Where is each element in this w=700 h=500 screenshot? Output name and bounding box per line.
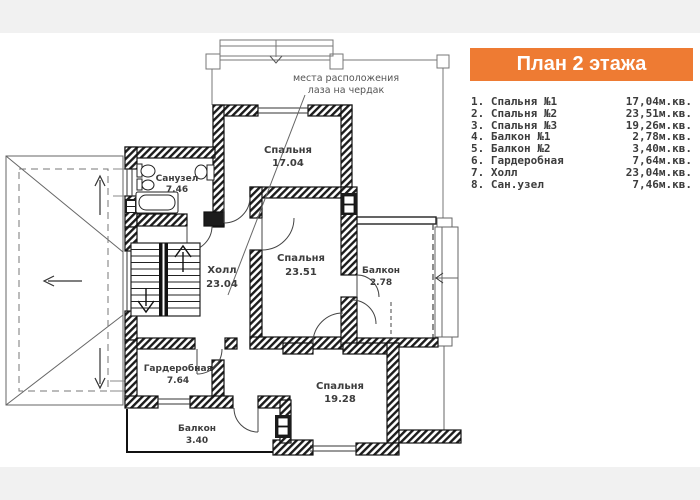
- legend-label: 8. Сан.узел: [471, 179, 544, 191]
- room-area-bathroom: 7.46: [166, 185, 188, 195]
- room-label-balcony2: Балкон: [178, 424, 216, 434]
- window-wardrobe-bottom: [158, 399, 190, 404]
- legend-area: 23,51м.кв.: [626, 108, 692, 120]
- legend-label: 7. Холл: [471, 167, 517, 179]
- legend-row: 8. Сан.узел 7,46м.кв.: [471, 179, 692, 191]
- room-area-hall: 23.04: [206, 279, 238, 290]
- legend-row: 7. Холл 23,04м.кв.: [471, 167, 692, 179]
- legend-area: 7,64м.кв.: [632, 155, 692, 167]
- room-label-bedroom1: Спальня: [264, 145, 312, 156]
- legend-label: 2. Спальня №2: [471, 108, 557, 120]
- bathtub: [136, 192, 178, 213]
- legend-row: 2. Спальня №2 23,51м.кв.: [471, 108, 692, 120]
- room-label-balcony1: Балкон: [362, 266, 400, 276]
- room-area-bedroom3: 19.28: [324, 394, 356, 405]
- door-bedroom1: [224, 197, 250, 223]
- window-bedroom1-top: [258, 108, 308, 113]
- window-bedroom3-bottom: [310, 446, 356, 451]
- annotation-line2: лаза на чердак: [308, 85, 385, 96]
- room-label-hall: Холл: [207, 265, 236, 276]
- room-area-balcony2: 3.40: [186, 436, 208, 446]
- legend-area: 7,46м.кв.: [632, 179, 692, 191]
- toilet: [137, 179, 154, 190]
- room-area-wardrobe: 7.64: [167, 376, 189, 386]
- door-bedroom2: [262, 218, 294, 250]
- room-area-bedroom2: 23.51: [285, 267, 317, 278]
- floorplan-page: места расположения лаза на чердак Спальн…: [0, 0, 700, 500]
- sink: [137, 164, 155, 177]
- room-label-bathroom: Санузел: [156, 174, 199, 184]
- window-bathroom-left: [127, 169, 132, 196]
- plan-title-banner: План 2 этажа: [470, 48, 693, 81]
- annotation-line1: места расположения: [293, 73, 399, 84]
- legend-area: 23,04м.кв.: [626, 167, 692, 179]
- room-label-bedroom2: Спальня: [277, 253, 325, 264]
- door-balcony2: [234, 408, 258, 432]
- room-label-bedroom3: Спальня: [316, 381, 364, 392]
- room-label-wardrobe: Гардеробная: [144, 363, 213, 374]
- page-title: План 2 этажа: [517, 53, 647, 76]
- room-area-bedroom1: 17.04: [272, 158, 304, 169]
- legend-row: 6. Гардеробная 7,64м.кв.: [471, 155, 692, 167]
- legend-label: 6. Гардеробная: [471, 155, 564, 167]
- room-legend: 1. Спальня №1 17,04м.кв. 2. Спальня №2 2…: [471, 96, 692, 190]
- attic-ladder-window: [435, 218, 458, 430]
- balcony1-outline: [352, 217, 438, 347]
- room-area-balcony1: 2.78: [370, 278, 392, 288]
- staircase: [131, 243, 200, 316]
- roof-slope-arrows: [44, 176, 105, 388]
